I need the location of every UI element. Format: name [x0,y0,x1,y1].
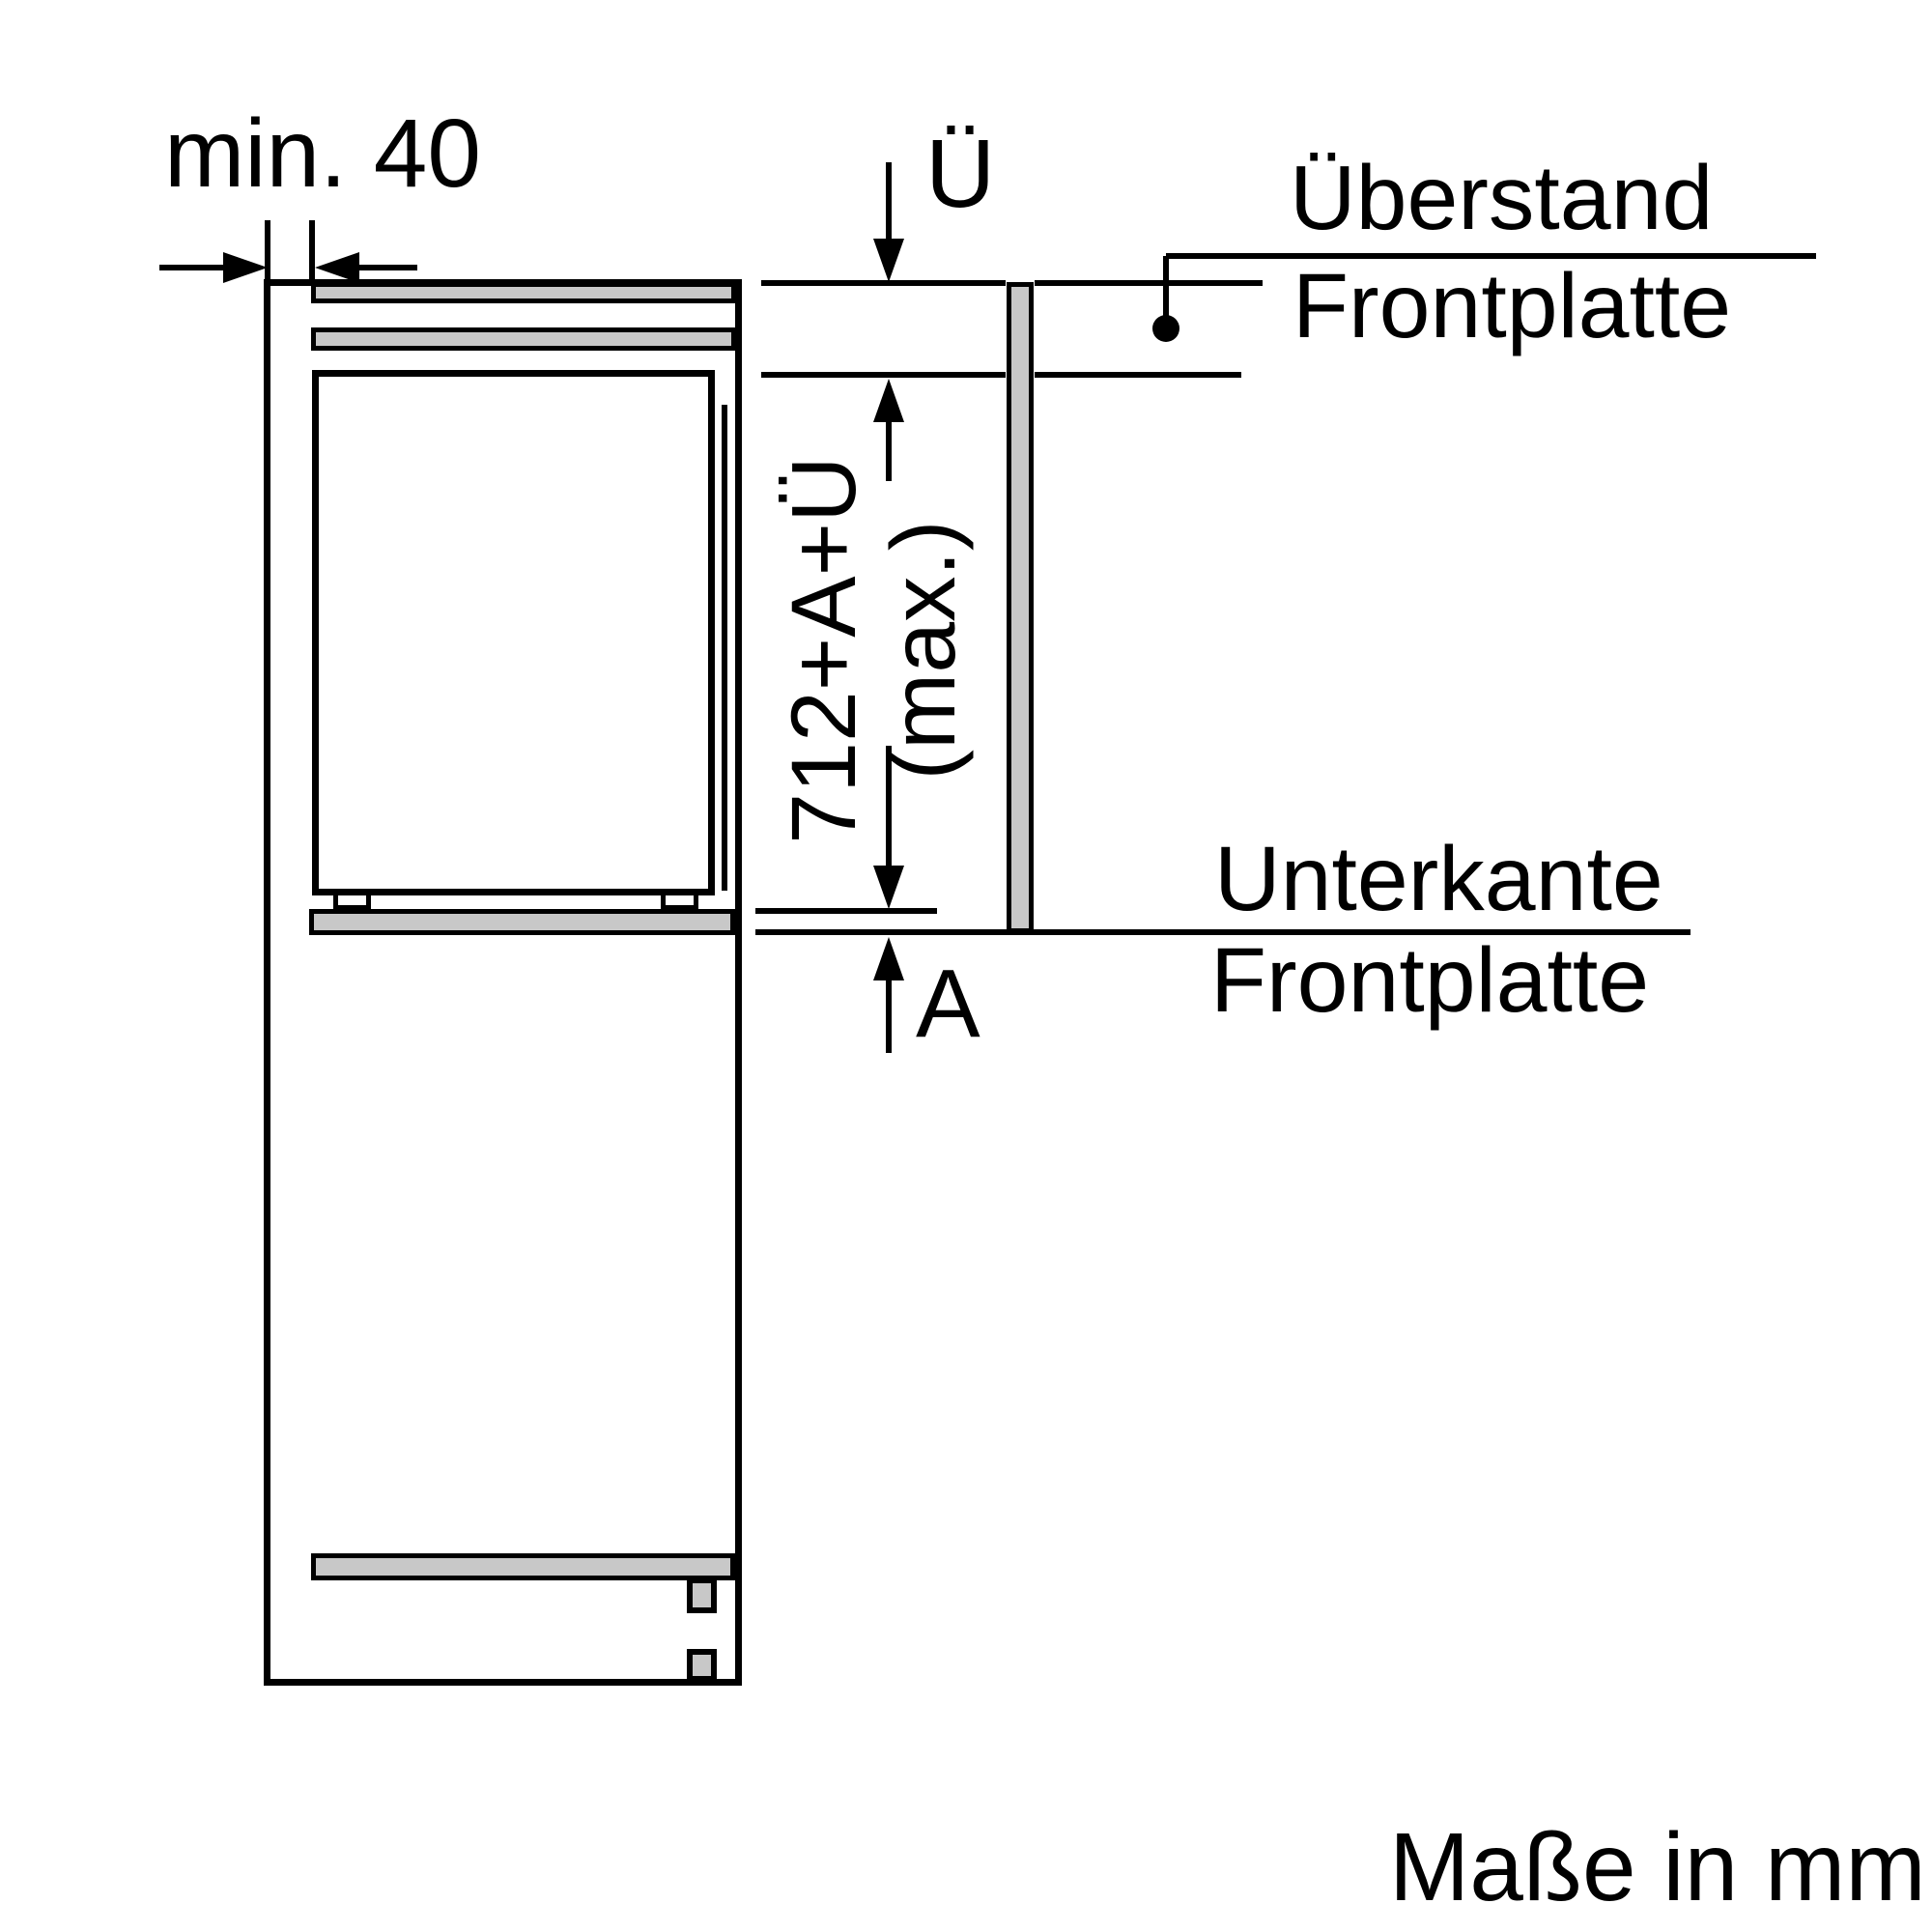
side-clearance-label: min. 40 [164,103,481,205]
panel-height-arrow-line-lower [886,746,892,867]
ext-line-paneltop-right [1035,280,1263,286]
bottom-edge-annotation-line2: Frontplatte [1210,929,1649,1032]
plinth-panel [311,1553,735,1580]
min40-line-right [359,265,417,270]
leader-dot [1152,315,1179,342]
hinge-block-upper [687,1577,717,1613]
leader-line [1163,256,1169,324]
appliance-door-line [722,405,727,891]
furniture-left-wall-line [264,279,270,1686]
furniture-bottom-line [264,1679,742,1686]
min40-arrowhead-right-icon [223,252,268,283]
bottom-gap-arrow-line [886,979,892,1053]
panel-height-label: 712+A+Ü (max.) [775,442,974,858]
overhang-annotation-line1: Überstand [1290,147,1713,249]
overhang-arrow-line [886,162,892,243]
furniture-right-wall-line [735,279,742,1686]
overhang-arrowhead-icon [873,239,904,282]
top-filler-panel-upper [311,282,736,303]
installation-diagram: min. 40 Ü 712+A+Ü (max.) A Überstand Fro… [0,0,1932,1932]
bottom-gap-symbol-label: A [916,953,980,1055]
overhang-annotation-line2: Frontplatte [1293,255,1731,357]
hinge-block-lower [687,1649,717,1682]
appliance-foot-left [333,895,371,910]
niche-bottom-shelf [309,909,735,935]
panel-height-arrowhead-down-icon [873,866,904,909]
min40-line-left [159,265,223,270]
min40-tick-left [265,220,270,286]
min40-arrowhead-left-icon [315,252,359,283]
front-panel-bar [1007,282,1034,933]
bottom-edge-annotation-line1: Unterkante [1214,828,1663,930]
ext-line-doortop-left [761,372,1006,378]
top-filler-panel-lower [311,327,736,351]
units-note: Maße in mm [1389,1817,1926,1918]
appliance-foot-right [661,895,698,910]
panel-height-formula: 712+A+Ü [775,442,874,858]
appliance-body [312,370,715,895]
overhang-symbol-label: Ü [925,124,995,225]
ext-line-doortop-right [1035,372,1241,378]
bottom-gap-arrowhead-icon [873,937,904,980]
panel-height-arrowhead-up-icon [873,379,904,422]
ext-line-niche-bottom [755,908,937,914]
